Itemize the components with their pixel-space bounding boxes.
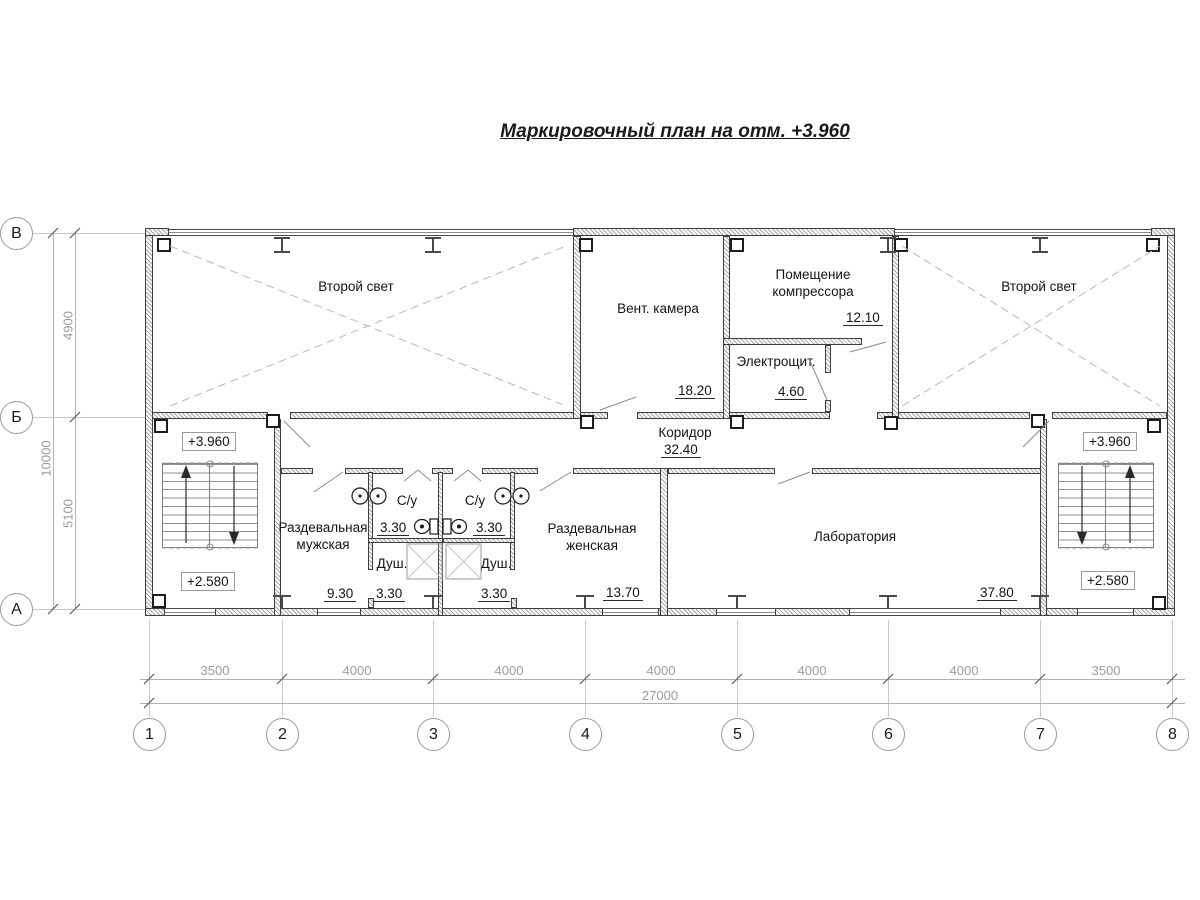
wall-compressor-right xyxy=(892,236,899,419)
wall-axis-b-seg xyxy=(1052,412,1167,419)
area-wc-left: 3.30 xyxy=(377,520,409,536)
wall-axis-b-seg xyxy=(290,412,608,419)
wall-vent-right xyxy=(723,236,730,419)
area-shower-left: 3.30 xyxy=(373,586,405,602)
room-label-compressor: Помещение компрессора xyxy=(758,267,868,301)
dim-label-span: 3500 xyxy=(1076,663,1136,678)
wall-bottom-seg xyxy=(215,608,318,616)
stair-split-line xyxy=(1105,463,1106,548)
door-leader-line xyxy=(540,472,571,491)
room-label-corridor: Коридор xyxy=(635,425,735,442)
ibeam-column-icon xyxy=(274,251,290,253)
dim-label-span: 3500 xyxy=(185,663,245,678)
wall-corridor-seg xyxy=(668,468,775,474)
axis-line-v xyxy=(30,233,145,234)
room-label-electro: Электрощит. xyxy=(721,354,831,371)
wall-top-corner-left xyxy=(145,228,169,236)
dim-line-bottom-total xyxy=(140,703,1185,704)
area-corridor: 32.40 xyxy=(661,442,701,458)
wall-electro-door-stub xyxy=(825,400,831,412)
axis-bubble-8: 8 xyxy=(1156,718,1189,751)
door-leader-line xyxy=(454,470,468,481)
wall-corridor-seg xyxy=(573,468,662,474)
room-label-shower-left: Душ. xyxy=(370,556,414,573)
elevation-mark-right-lower: +2.580 xyxy=(1081,571,1135,590)
wall-bottom-seg xyxy=(1000,608,1078,616)
column-square xyxy=(730,238,744,252)
plan-title: Маркировочный план на отм. +3.960 xyxy=(455,121,895,143)
staircase-right xyxy=(1058,463,1154,548)
ibeam-column-icon xyxy=(736,597,738,609)
dim-line-left-spans xyxy=(75,233,76,609)
axis-bubble-v: В xyxy=(0,217,33,250)
dim-label-span: 4000 xyxy=(327,663,387,678)
column-square xyxy=(894,238,908,252)
wall-vent-left xyxy=(573,236,581,419)
wall-axis-b-seg xyxy=(152,412,268,419)
door-leader-line xyxy=(600,397,636,410)
void-cross-line xyxy=(902,246,1160,406)
column-square xyxy=(1147,419,1161,433)
dim-label-span: 4000 xyxy=(934,663,994,678)
wall-axis-b-seg xyxy=(877,412,1030,419)
wall-exterior-left xyxy=(145,228,153,616)
toilet-icon xyxy=(452,520,467,534)
ibeam-column-icon xyxy=(425,251,441,253)
ibeam-column-icon xyxy=(1032,251,1048,253)
toilet-icon xyxy=(415,520,430,534)
stair-split-line xyxy=(209,463,210,548)
area-shower-right: 3.30 xyxy=(478,586,510,602)
column-square xyxy=(580,415,594,429)
area-electro: 4.60 xyxy=(775,384,807,400)
washbasin-icon xyxy=(352,488,368,504)
column-square xyxy=(152,594,166,608)
area-lab: 37.80 xyxy=(977,585,1017,601)
wall-corridor-seg xyxy=(812,468,1043,474)
elevation-mark-left-upper: +3.960 xyxy=(182,432,236,451)
dim-label-10000: 10000 xyxy=(39,427,54,491)
washbasin-icon xyxy=(501,494,504,497)
wall-corridor-seg xyxy=(345,468,403,474)
wall-top-corner-right xyxy=(1151,228,1175,236)
dim-label-span: 4000 xyxy=(782,663,842,678)
room-label-second-light-left: Второй свет xyxy=(306,279,406,296)
ibeam-column-icon xyxy=(432,597,434,609)
staircase-left xyxy=(162,463,258,548)
wall-stair-right xyxy=(1040,419,1047,616)
column-square xyxy=(884,416,898,430)
column-square xyxy=(154,419,168,433)
room-label-locker-men: Раздевальная мужская xyxy=(271,520,375,554)
axis-bubble-7: 7 xyxy=(1024,718,1057,751)
axis-bubble-a: А xyxy=(0,593,33,626)
dim-line-left-total xyxy=(53,233,54,609)
toilet-icon xyxy=(457,525,461,529)
door-leader-line xyxy=(284,421,310,447)
area-wc-right: 3.30 xyxy=(473,520,505,536)
axis-bubble-1: 1 xyxy=(133,718,166,751)
toilet-icon xyxy=(420,525,424,529)
elevation-mark-right-upper: +3.960 xyxy=(1083,432,1137,451)
ibeam-column-icon xyxy=(584,597,586,609)
axis-bubble-4: 4 xyxy=(569,718,602,751)
washbasin-icon xyxy=(519,494,522,497)
dim-line-bottom-spans xyxy=(140,679,1185,680)
void-cross-line xyxy=(170,246,566,406)
elevation-mark-left-lower: +2.580 xyxy=(181,572,235,591)
floor-plan-drawing: Маркировочный план на отм. +3.960 xyxy=(0,0,1200,900)
wall-electro-partition xyxy=(723,338,862,345)
dim-label-4900: 4900 xyxy=(61,294,76,358)
wall-top-middle xyxy=(573,228,895,236)
dim-label-5100: 5100 xyxy=(61,482,76,546)
void-cross-line xyxy=(170,246,566,406)
wall-corridor-seg xyxy=(281,468,313,474)
axis-bubble-6: 6 xyxy=(872,718,905,751)
axis-bubble-b: Б xyxy=(0,401,33,434)
washbasin-icon xyxy=(513,488,529,504)
void-cross-line xyxy=(902,246,1160,406)
door-leader-line xyxy=(404,470,418,481)
ibeam-column-icon xyxy=(1039,597,1041,609)
wall-lab-left xyxy=(660,468,668,616)
room-label-locker-women: Раздевальная женская xyxy=(537,521,647,555)
column-square xyxy=(1146,238,1160,252)
wall-stair-left xyxy=(274,419,281,616)
ibeam-column-icon xyxy=(887,597,889,609)
room-label-second-light-right: Второй свет xyxy=(989,279,1089,296)
toilet-icon xyxy=(443,519,451,534)
wall-exterior-right xyxy=(1167,228,1175,616)
area-compressor: 12.10 xyxy=(843,310,883,326)
axis-line-a xyxy=(30,609,145,610)
ibeam-column-icon xyxy=(880,251,896,253)
column-square xyxy=(1031,414,1045,428)
wall-stub xyxy=(511,598,517,608)
ibeam-column-icon xyxy=(281,597,283,609)
door-leader-line xyxy=(418,470,431,481)
wall-shower-right xyxy=(443,538,515,543)
dim-label-span: 4000 xyxy=(479,663,539,678)
room-label-wc-right: С/у xyxy=(455,493,495,510)
room-label-vent: Вент. камера xyxy=(600,301,716,318)
wall-bottom-seg xyxy=(360,608,603,616)
dim-label-span: 4000 xyxy=(631,663,691,678)
axis-bubble-2: 2 xyxy=(266,718,299,751)
axis-bubble-5: 5 xyxy=(721,718,754,751)
room-label-wc-left: С/у xyxy=(387,493,427,510)
door-leader-line xyxy=(778,472,810,484)
toilet-icon xyxy=(430,519,438,534)
door-leader-line xyxy=(314,472,343,492)
column-square xyxy=(266,414,280,428)
dim-label-total: 27000 xyxy=(630,688,690,703)
area-vent: 18.20 xyxy=(675,383,715,399)
column-square xyxy=(1152,596,1166,610)
washbasin-icon xyxy=(358,494,361,497)
door-leader-line xyxy=(468,470,481,481)
axis-line-b xyxy=(30,417,145,418)
wall-bottom-seg xyxy=(775,608,850,616)
wall-bottom-seg xyxy=(145,608,165,616)
column-square xyxy=(579,238,593,252)
room-label-lab: Лаборатория xyxy=(795,529,915,546)
washbasin-icon xyxy=(495,488,511,504)
axis-bubble-3: 3 xyxy=(417,718,450,751)
column-square xyxy=(157,238,171,252)
area-locker-women: 13.70 xyxy=(603,585,643,601)
room-label-shower-right: Душ. xyxy=(474,556,518,573)
washbasin-icon xyxy=(376,494,379,497)
wall-shower-left xyxy=(368,538,443,543)
area-locker-men: 9.30 xyxy=(324,586,356,602)
